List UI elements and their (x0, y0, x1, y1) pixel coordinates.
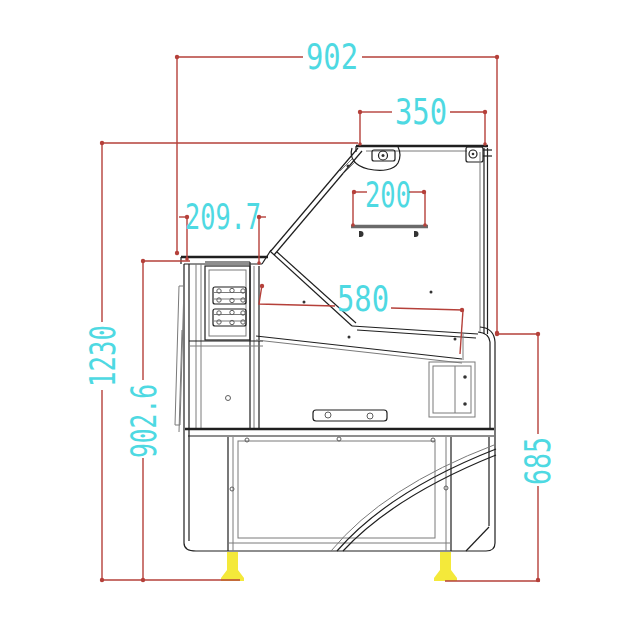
dim-label-rear-height: 902.6 (123, 384, 164, 458)
vent-opening (351, 227, 428, 238)
dim-label-front-height: 685 (517, 437, 558, 485)
base-section (196, 437, 496, 551)
right-adjustable-foot (434, 552, 457, 581)
dim-label-rear-top-depth: 209.7 (185, 196, 261, 237)
evaporator-box (189, 262, 263, 430)
display-case-section-drawing: 902 350 200 209.7 580 1230 902.6 685 (0, 0, 640, 640)
front-nose (466, 327, 495, 551)
dim-label-canopy-depth: 350 (395, 91, 447, 132)
dim-label-overall-width: 902 (306, 36, 358, 77)
curved-glass-arc (331, 445, 494, 551)
dimension-lines (100, 55, 540, 582)
dim-label-deck-length: 580 (337, 278, 389, 319)
rear-wall (175, 264, 201, 551)
cad-drawing-canvas: 902 350 200 209.7 580 1230 902.6 685 (0, 0, 640, 640)
left-adjustable-foot (221, 552, 244, 581)
rear-glass-panel (480, 148, 488, 334)
angled-glass-panel (270, 148, 362, 255)
dim-label-overall-height: 1230 (82, 325, 123, 387)
bottom-bracket-plate (313, 410, 387, 421)
counter-floor (185, 429, 494, 436)
dim-label-vent-opening: 200 (365, 174, 411, 215)
adjustable-feet (221, 552, 457, 581)
dimension-arrows (100, 55, 540, 582)
front-compartment (429, 362, 475, 417)
hinge-housing (351, 147, 400, 170)
